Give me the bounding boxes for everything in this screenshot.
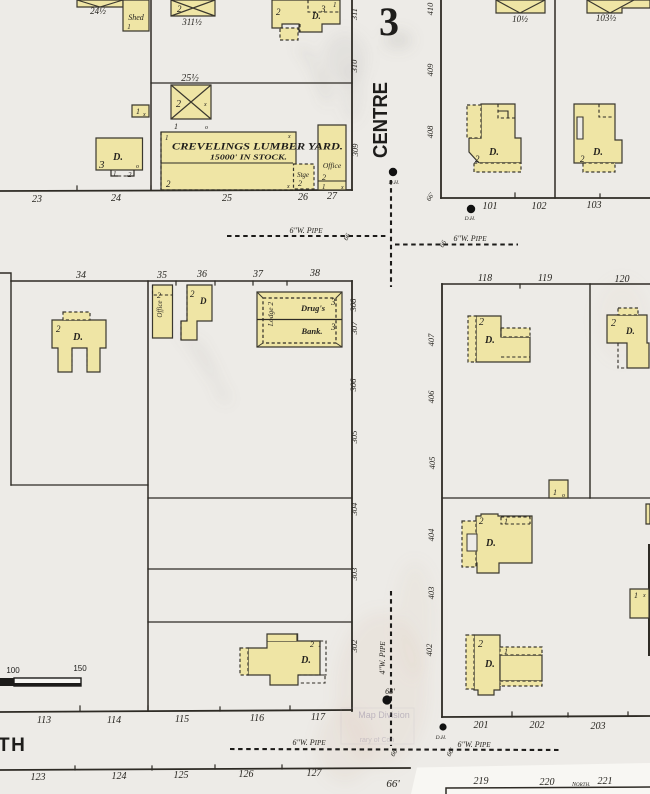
svg-text:x: x xyxy=(286,184,290,190)
svg-text:1: 1 xyxy=(322,183,326,191)
svg-text:6"W. PIPE: 6"W. PIPE xyxy=(289,226,323,235)
svg-text:115: 115 xyxy=(175,714,189,725)
svg-text:220: 220 xyxy=(540,777,555,788)
svg-text:406: 406 xyxy=(426,390,436,404)
svg-text:Drug's: Drug's xyxy=(300,303,326,313)
svg-text:25½: 25½ xyxy=(181,73,199,84)
svg-text:D.: D. xyxy=(485,538,496,549)
svg-text:150: 150 xyxy=(73,664,87,673)
svg-text:25: 25 xyxy=(222,193,232,204)
svg-text:308: 308 xyxy=(348,298,358,313)
svg-text:123: 123 xyxy=(31,772,46,783)
svg-text:D: D xyxy=(199,296,207,306)
svg-text:407: 407 xyxy=(426,333,436,347)
svg-text:409: 409 xyxy=(425,63,435,77)
svg-text:311: 311 xyxy=(349,8,359,21)
svg-text:38: 38 xyxy=(309,268,320,279)
svg-text:x: x xyxy=(642,593,646,599)
svg-text:2: 2 xyxy=(310,640,314,649)
svg-text:307: 307 xyxy=(349,321,359,336)
svg-text:6"W. PIPE: 6"W. PIPE xyxy=(453,234,487,243)
svg-text:D.: D. xyxy=(484,335,495,346)
svg-text:3: 3 xyxy=(330,322,336,332)
svg-text:103½: 103½ xyxy=(596,13,617,23)
svg-text:309: 309 xyxy=(350,143,360,158)
svg-text:1: 1 xyxy=(504,647,508,656)
svg-text:D.: D. xyxy=(592,147,603,158)
svg-text:120: 120 xyxy=(615,274,630,285)
svg-text:D.: D. xyxy=(72,332,83,343)
svg-text:219: 219 xyxy=(474,776,489,787)
svg-text:405: 405 xyxy=(427,457,437,470)
svg-text:311½: 311½ xyxy=(181,17,202,27)
svg-text:D.: D. xyxy=(484,659,495,670)
svg-text:Office: Office xyxy=(323,161,342,170)
svg-text:4"W. PIPE: 4"W. PIPE xyxy=(378,641,387,675)
svg-text:D.: D. xyxy=(112,152,123,163)
svg-text:119: 119 xyxy=(538,273,552,284)
svg-text:117: 117 xyxy=(311,712,326,723)
svg-text:D.: D. xyxy=(625,326,635,336)
svg-text:x: x xyxy=(287,134,291,140)
svg-text:66': 66' xyxy=(386,778,400,790)
svg-text:24½: 24½ xyxy=(90,6,106,16)
svg-text:2: 2 xyxy=(157,291,161,300)
svg-text:2: 2 xyxy=(580,154,585,164)
svg-text:408: 408 xyxy=(425,125,435,139)
svg-text:304: 304 xyxy=(349,502,359,517)
svg-text:68': 68' xyxy=(385,687,395,696)
svg-text:1: 1 xyxy=(127,23,131,31)
svg-text:3: 3 xyxy=(320,4,326,14)
svg-text:D.: D. xyxy=(300,655,311,666)
svg-text:114: 114 xyxy=(107,715,121,726)
svg-text:2: 2 xyxy=(479,516,484,526)
svg-text:1: 1 xyxy=(165,134,169,142)
svg-text:26: 26 xyxy=(298,192,308,203)
svg-text:6"W. PIPE: 6"W. PIPE xyxy=(457,740,491,749)
svg-text:D.: D. xyxy=(311,11,321,21)
svg-text:27: 27 xyxy=(327,191,338,202)
svg-text:124: 124 xyxy=(112,771,127,782)
svg-text:410: 410 xyxy=(425,2,435,16)
svg-text:1: 1 xyxy=(174,122,178,131)
svg-text:203: 203 xyxy=(591,721,606,732)
svg-text:37: 37 xyxy=(252,269,264,280)
svg-text:113: 113 xyxy=(37,715,51,726)
svg-text:2: 2 xyxy=(276,7,281,17)
svg-text:x: x xyxy=(203,102,207,108)
svg-text:TH: TH xyxy=(0,735,26,756)
svg-text:116: 116 xyxy=(250,713,264,724)
svg-text:102: 102 xyxy=(532,201,547,212)
svg-text:D.: D. xyxy=(488,147,499,158)
svg-text:23: 23 xyxy=(32,194,42,205)
svg-text:2: 2 xyxy=(611,318,616,329)
svg-text:6"W. PIPE: 6"W. PIPE xyxy=(292,738,326,747)
svg-text:Stge: Stge xyxy=(297,171,309,179)
svg-text:CENTRE: CENTRE xyxy=(370,82,392,158)
svg-text:303: 303 xyxy=(349,568,359,582)
svg-text:2: 2 xyxy=(176,99,181,110)
svg-text:404: 404 xyxy=(426,528,436,542)
svg-text:1: 1 xyxy=(136,107,140,116)
svg-text:NORTH.: NORTH. xyxy=(571,782,590,788)
svg-text:1: 1 xyxy=(634,591,638,600)
svg-text:x: x xyxy=(340,185,344,191)
svg-text:D.H.: D.H. xyxy=(388,180,400,186)
svg-text:1: 1 xyxy=(504,517,508,526)
svg-text:1: 1 xyxy=(553,488,557,497)
svg-text:2: 2 xyxy=(322,173,326,182)
svg-text:2: 2 xyxy=(479,317,484,328)
svg-text:2: 2 xyxy=(475,154,480,164)
svg-text:3: 3 xyxy=(379,0,399,44)
svg-text:127: 127 xyxy=(307,768,323,779)
svg-text:201: 201 xyxy=(474,720,489,731)
svg-text:1: 1 xyxy=(113,170,117,178)
svg-text:2: 2 xyxy=(128,171,132,179)
svg-text:Lodge 2: Lodge 2 xyxy=(266,302,275,328)
svg-text:103: 103 xyxy=(587,200,602,211)
svg-text:1: 1 xyxy=(333,1,337,9)
svg-text:D.H.: D.H. xyxy=(435,735,447,741)
svg-text:Office: Office xyxy=(156,300,164,317)
svg-text:Shed: Shed xyxy=(128,13,145,22)
svg-text:403: 403 xyxy=(426,587,436,600)
svg-text:o: o xyxy=(205,125,208,131)
svg-text:o: o xyxy=(136,164,139,170)
svg-text:34: 34 xyxy=(75,270,86,281)
svg-text:202: 202 xyxy=(530,720,545,731)
svg-text:305: 305 xyxy=(349,431,359,445)
svg-text:402: 402 xyxy=(424,643,434,657)
svg-text:2: 2 xyxy=(177,4,182,14)
svg-text:Bank.: Bank. xyxy=(300,326,322,336)
svg-text:118: 118 xyxy=(478,273,492,284)
svg-text:126: 126 xyxy=(239,769,254,780)
svg-text:2: 2 xyxy=(166,179,171,189)
svg-text:302: 302 xyxy=(349,639,359,654)
svg-text:2: 2 xyxy=(298,179,302,188)
svg-text:35: 35 xyxy=(156,270,167,281)
svg-text:310: 310 xyxy=(349,59,359,74)
svg-text:o: o xyxy=(562,493,565,499)
svg-text:1: 1 xyxy=(318,641,322,649)
svg-text:15000' IN STOCK.: 15000' IN STOCK. xyxy=(210,153,287,162)
svg-text:D.H.: D.H. xyxy=(464,216,476,222)
svg-text:2: 2 xyxy=(478,639,483,650)
svg-text:36: 36 xyxy=(196,269,207,280)
svg-text:CREVELINGS LUMBER YARD.: CREVELINGS LUMBER YARD. xyxy=(172,143,343,153)
svg-text:3: 3 xyxy=(98,159,105,171)
svg-text:221: 221 xyxy=(598,776,613,787)
svg-text:24: 24 xyxy=(111,193,121,204)
svg-text:Map Division: Map Division xyxy=(358,710,410,720)
svg-text:100: 100 xyxy=(6,666,20,675)
svg-text:x: x xyxy=(142,112,146,118)
svg-text:125: 125 xyxy=(174,770,189,781)
svg-text:101: 101 xyxy=(483,201,498,212)
svg-text:3: 3 xyxy=(330,297,336,307)
svg-text:306: 306 xyxy=(348,378,358,393)
svg-text:10½: 10½ xyxy=(512,14,528,24)
svg-text:rary of Con: rary of Con xyxy=(360,737,395,744)
svg-text:2: 2 xyxy=(190,289,195,299)
svg-text:2: 2 xyxy=(56,324,61,334)
